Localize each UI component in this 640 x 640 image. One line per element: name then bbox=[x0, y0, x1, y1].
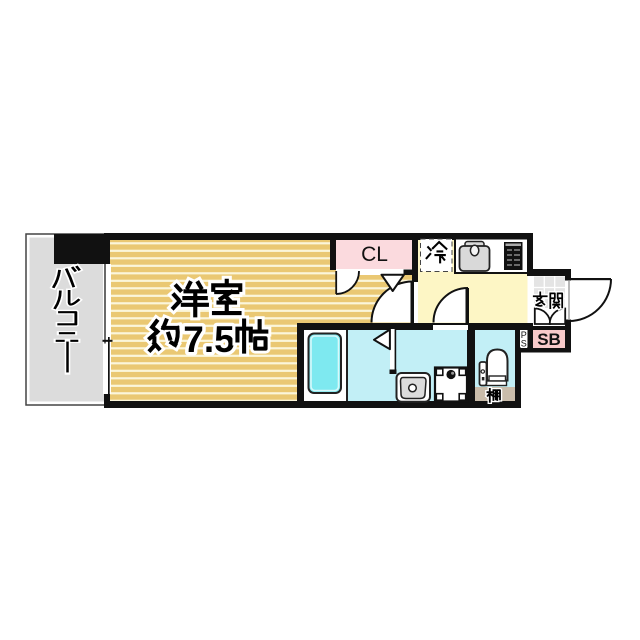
svg-text:7.5: 7.5 bbox=[183, 319, 234, 360]
svg-text:SB: SB bbox=[537, 330, 561, 349]
svg-text:S: S bbox=[521, 339, 527, 349]
svg-text:CL: CL bbox=[361, 243, 388, 266]
